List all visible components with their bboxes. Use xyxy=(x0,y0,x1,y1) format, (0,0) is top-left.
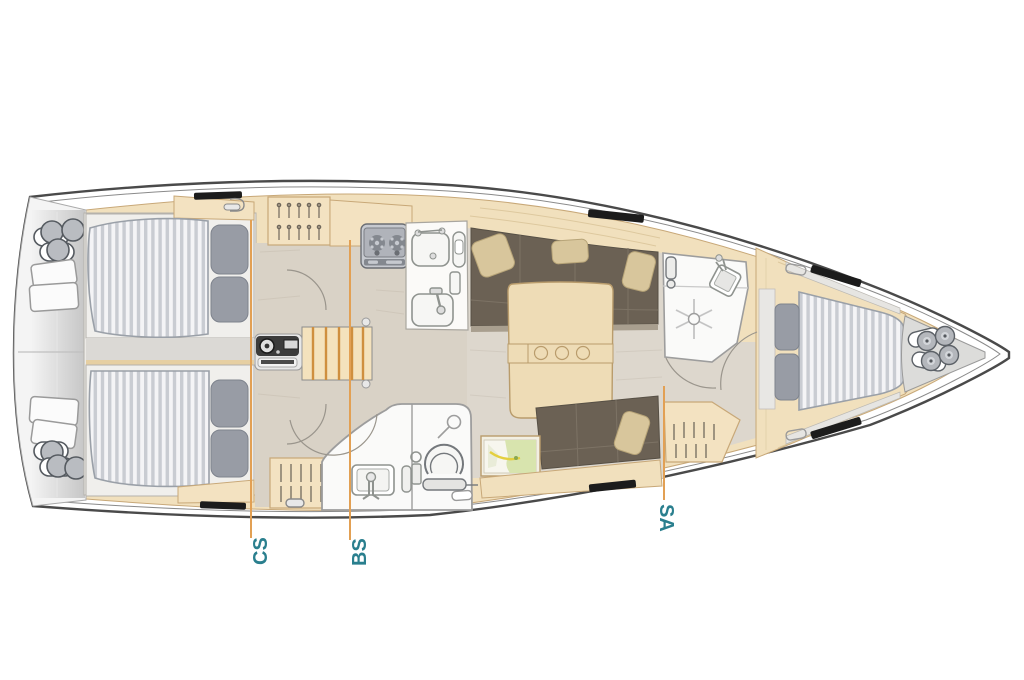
svg-text:BS: BS xyxy=(349,538,371,566)
svg-text:SA: SA xyxy=(655,504,677,532)
svg-text:CS: CS xyxy=(250,537,272,565)
